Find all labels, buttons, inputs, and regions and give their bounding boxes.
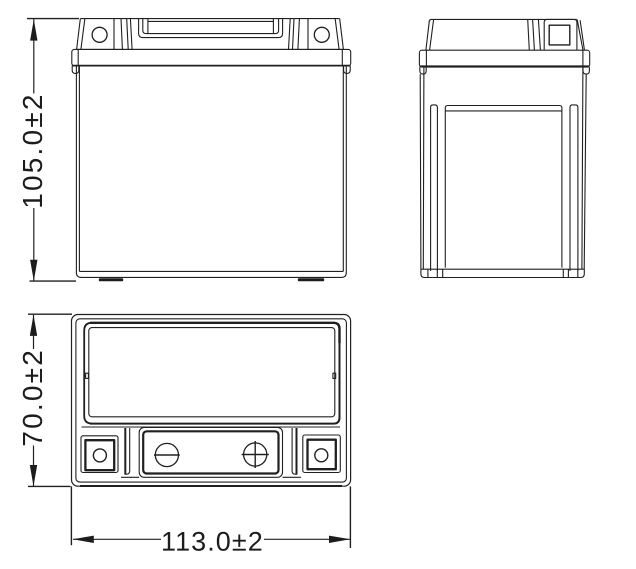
svg-text:70.0±2: 70.0±2: [17, 348, 48, 447]
svg-text:105.0±2: 105.0±2: [17, 92, 48, 208]
svg-text:113.0±2: 113.0±2: [161, 527, 264, 557]
